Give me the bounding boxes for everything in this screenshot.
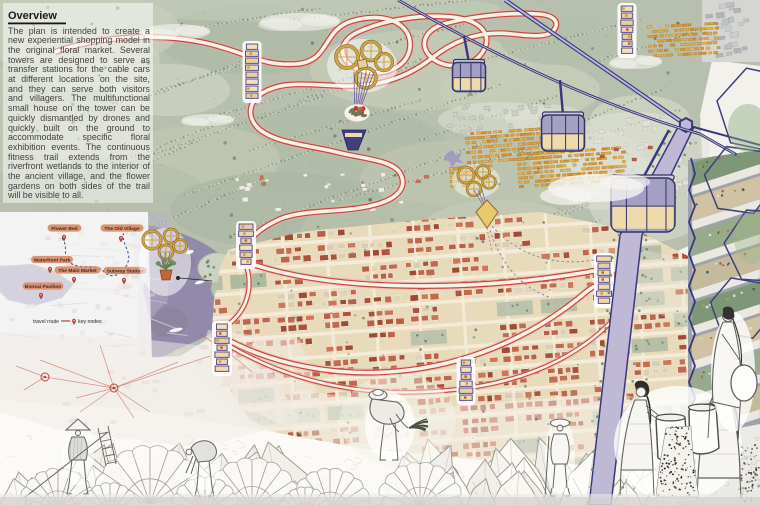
svg-text:Overview: Overview: [8, 10, 57, 22]
